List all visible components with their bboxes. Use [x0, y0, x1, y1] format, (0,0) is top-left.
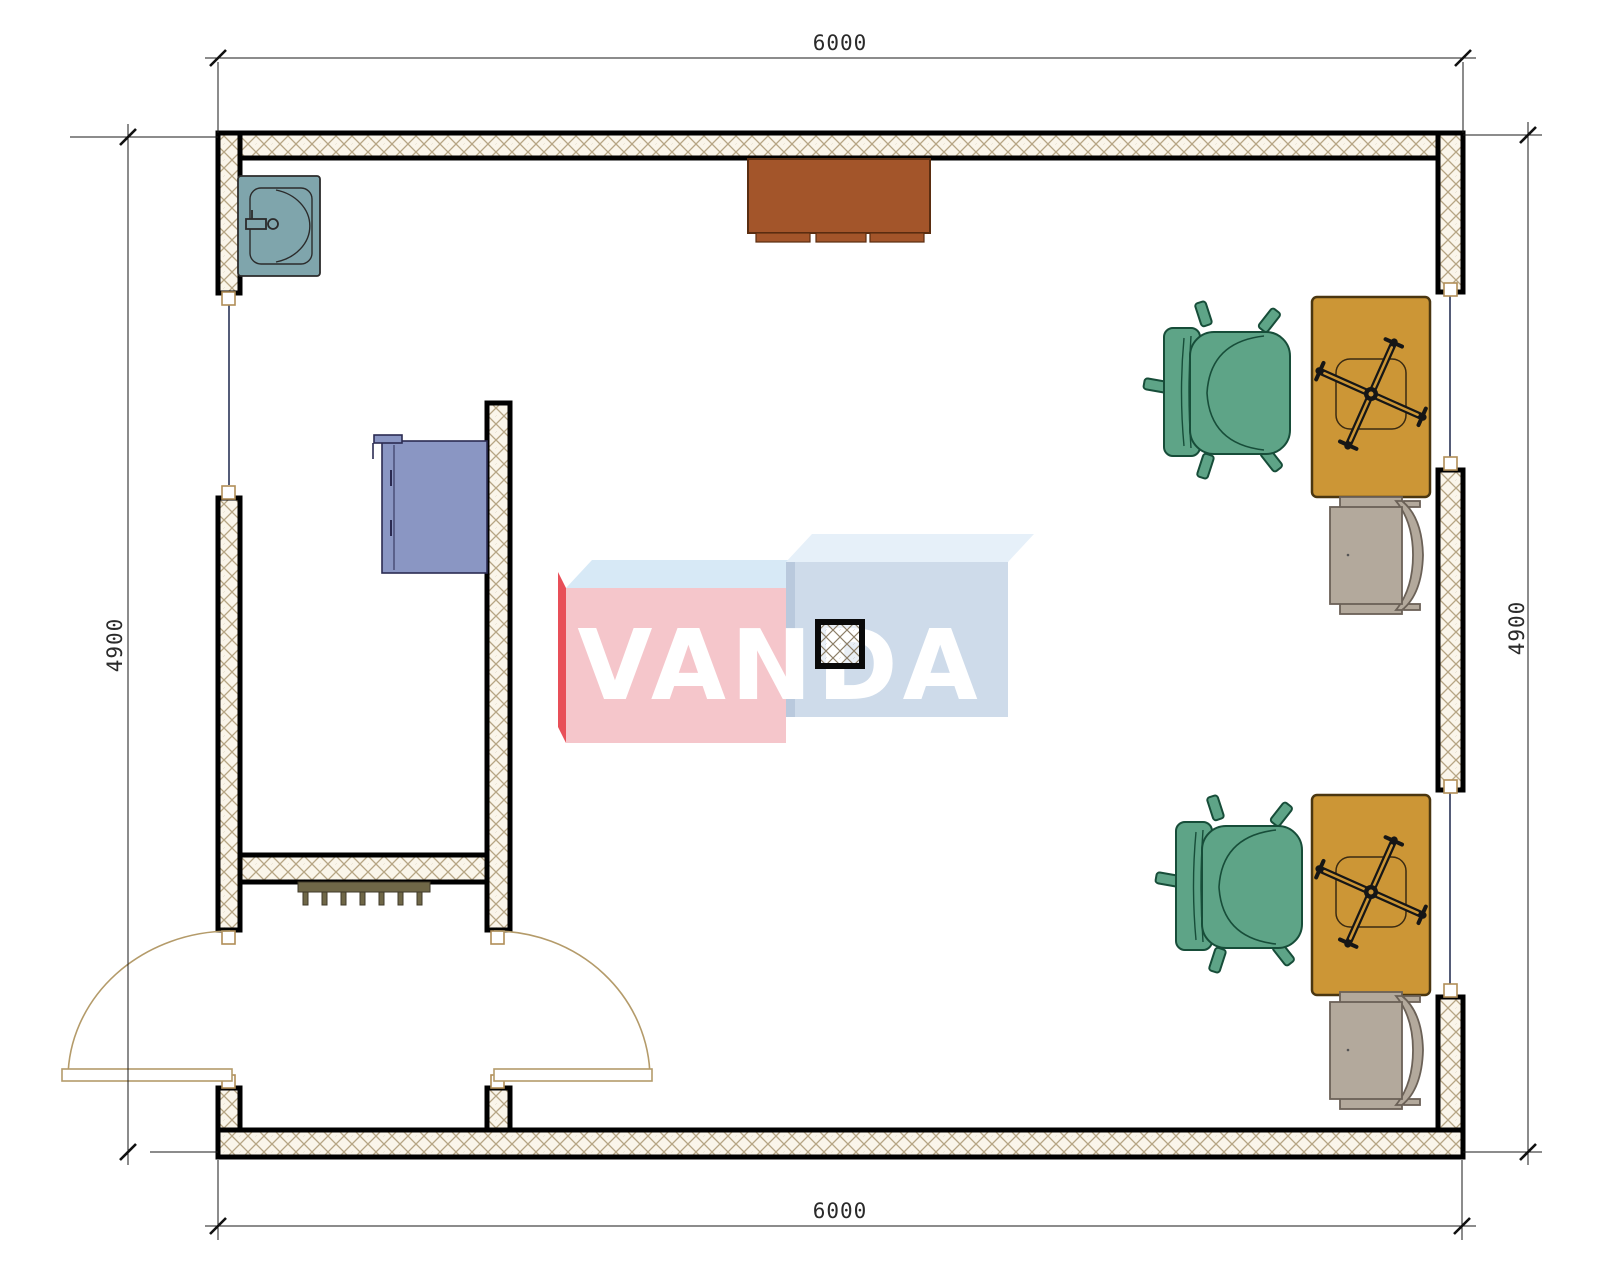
frame-square	[1444, 457, 1457, 470]
dim-bottom-label: 6000	[813, 1199, 868, 1223]
frame-square	[222, 486, 235, 499]
wall-stub-left	[218, 1088, 240, 1130]
column-hatch	[818, 622, 862, 666]
wall-stub-right	[487, 1088, 510, 1130]
wall-partition	[487, 403, 510, 930]
dim-left-label: 4900	[103, 618, 127, 673]
dim-right: 4900	[1463, 122, 1542, 1165]
cabinet-foot	[756, 233, 810, 242]
watermark-text: VANDA	[577, 609, 982, 722]
watermark-box-left-side	[558, 572, 566, 743]
cabinet-body	[748, 159, 930, 233]
dim-right-label: 4900	[1505, 601, 1529, 656]
desk-2	[1312, 795, 1430, 995]
side-chair-1	[1330, 497, 1423, 614]
frame-square	[1444, 283, 1457, 296]
cabinet-foot	[816, 233, 866, 242]
office-chair-1	[1143, 301, 1290, 480]
side-chair-2	[1330, 992, 1423, 1109]
frame-square	[1444, 984, 1457, 997]
wardrobe	[373, 435, 487, 573]
radiator-fin	[303, 892, 308, 905]
sink-faucet-knob	[268, 219, 278, 229]
entry-double-door	[62, 931, 652, 1081]
door-right-swing-arc	[494, 931, 650, 1078]
wall-left-upper	[218, 133, 240, 293]
frame-square	[222, 292, 235, 305]
door-hinge-square	[222, 931, 235, 944]
radiator-fin	[379, 892, 384, 905]
floor-plan: VANDA	[0, 0, 1600, 1280]
door-left-leaf	[62, 1069, 232, 1081]
wall-left-lower	[218, 498, 240, 930]
door-hinge-square	[491, 931, 504, 944]
wall-right-upper	[1438, 133, 1463, 292]
wall-bottom	[218, 1130, 1463, 1157]
wall-right-middle	[1438, 470, 1463, 790]
radiator-bar	[298, 882, 430, 892]
radiator-fin	[417, 892, 422, 905]
dim-bottom: 6000	[205, 1160, 1476, 1240]
radiator-fin	[341, 892, 346, 905]
floor-plan-svg: VANDA	[0, 0, 1600, 1280]
watermark: VANDA	[558, 534, 1034, 743]
radiator-fin	[322, 892, 327, 905]
frame-square	[1444, 780, 1457, 793]
sink	[238, 176, 320, 276]
dim-left: 4900	[70, 124, 218, 1165]
sink-faucet	[246, 219, 266, 229]
watermark-box-right-top	[786, 534, 1034, 562]
door-right-leaf	[494, 1069, 652, 1081]
cabinet-foot	[870, 233, 924, 242]
column	[818, 622, 862, 666]
watermark-box-left-top	[566, 560, 812, 588]
cabinet	[748, 159, 930, 242]
dim-top: 6000	[205, 31, 1476, 133]
door-left-swing-arc	[68, 931, 230, 1078]
radiator-fin	[360, 892, 365, 905]
radiator	[298, 882, 430, 905]
radiator-fin	[398, 892, 403, 905]
desk-1	[1312, 297, 1430, 497]
wall-top	[218, 133, 1463, 158]
office-chair-2	[1155, 795, 1302, 974]
dim-top-label: 6000	[813, 31, 868, 55]
wall-interior-horizontal	[240, 855, 487, 882]
wardrobe-body	[382, 441, 487, 573]
wardrobe-handle	[374, 435, 402, 443]
